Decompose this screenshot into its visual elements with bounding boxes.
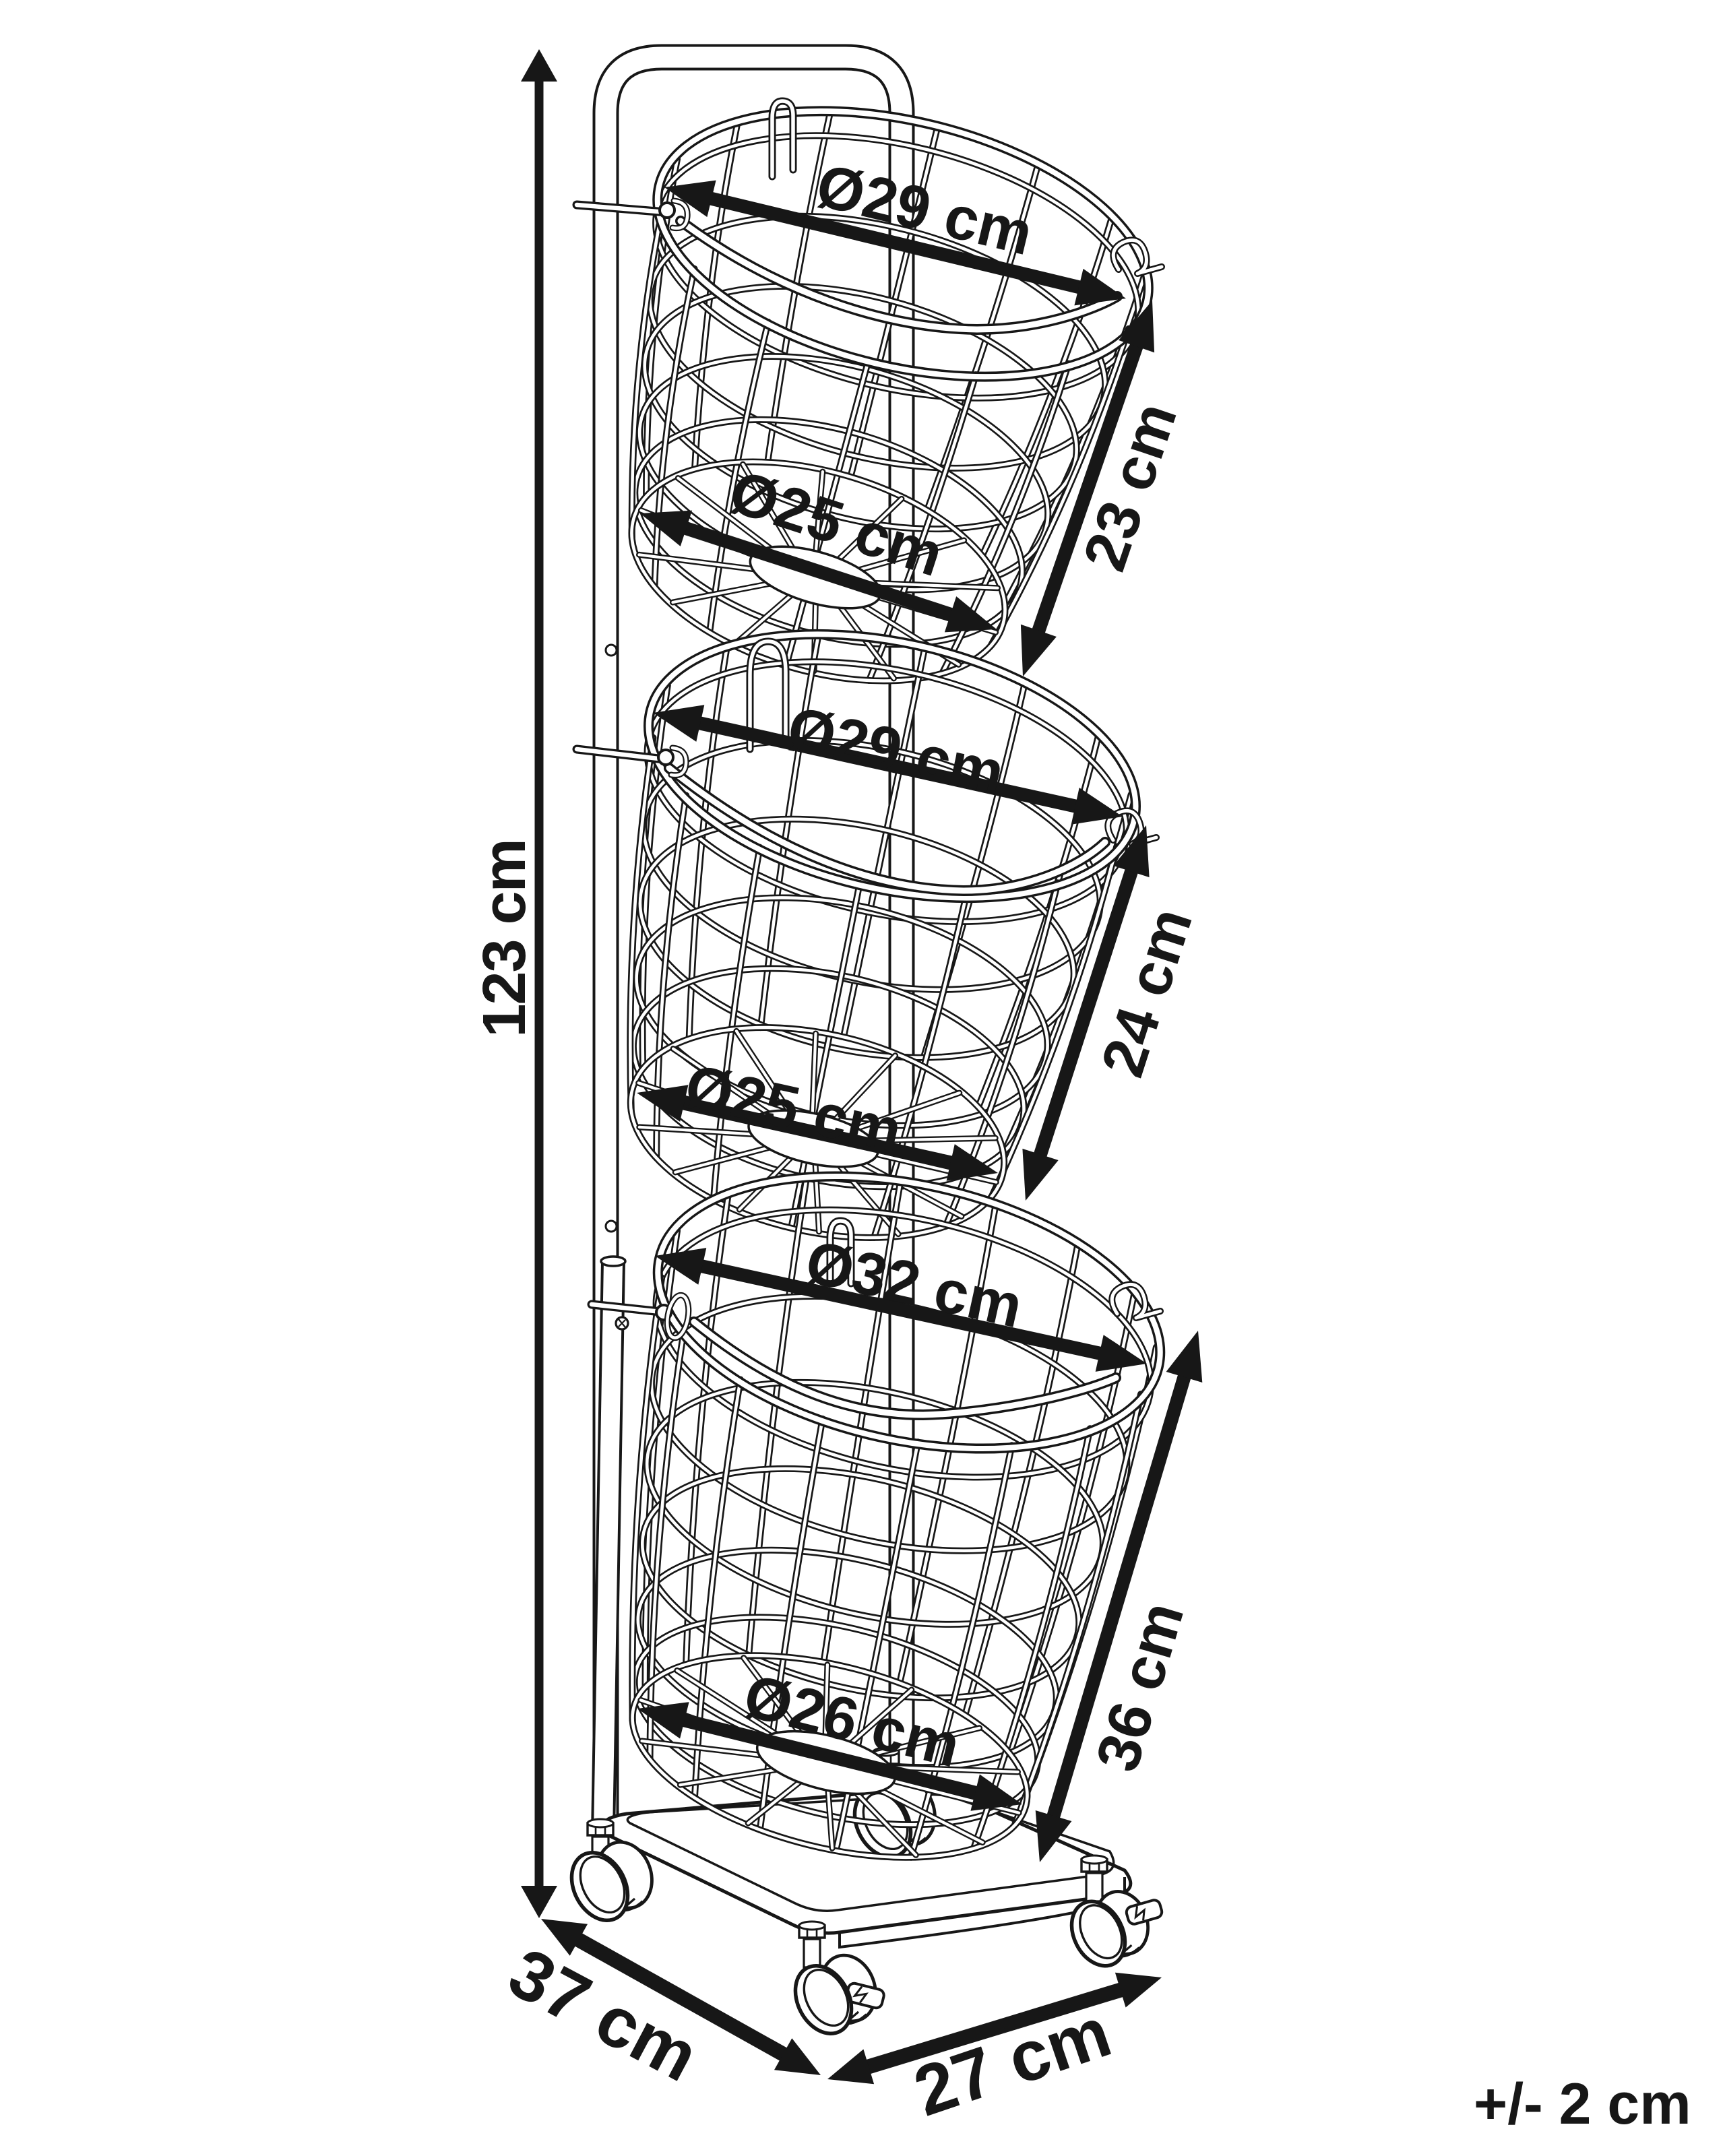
- svg-text:+/- 2 cm: +/- 2 cm: [1474, 2072, 1691, 2136]
- svg-text:123 cm: 123 cm: [471, 839, 538, 1037]
